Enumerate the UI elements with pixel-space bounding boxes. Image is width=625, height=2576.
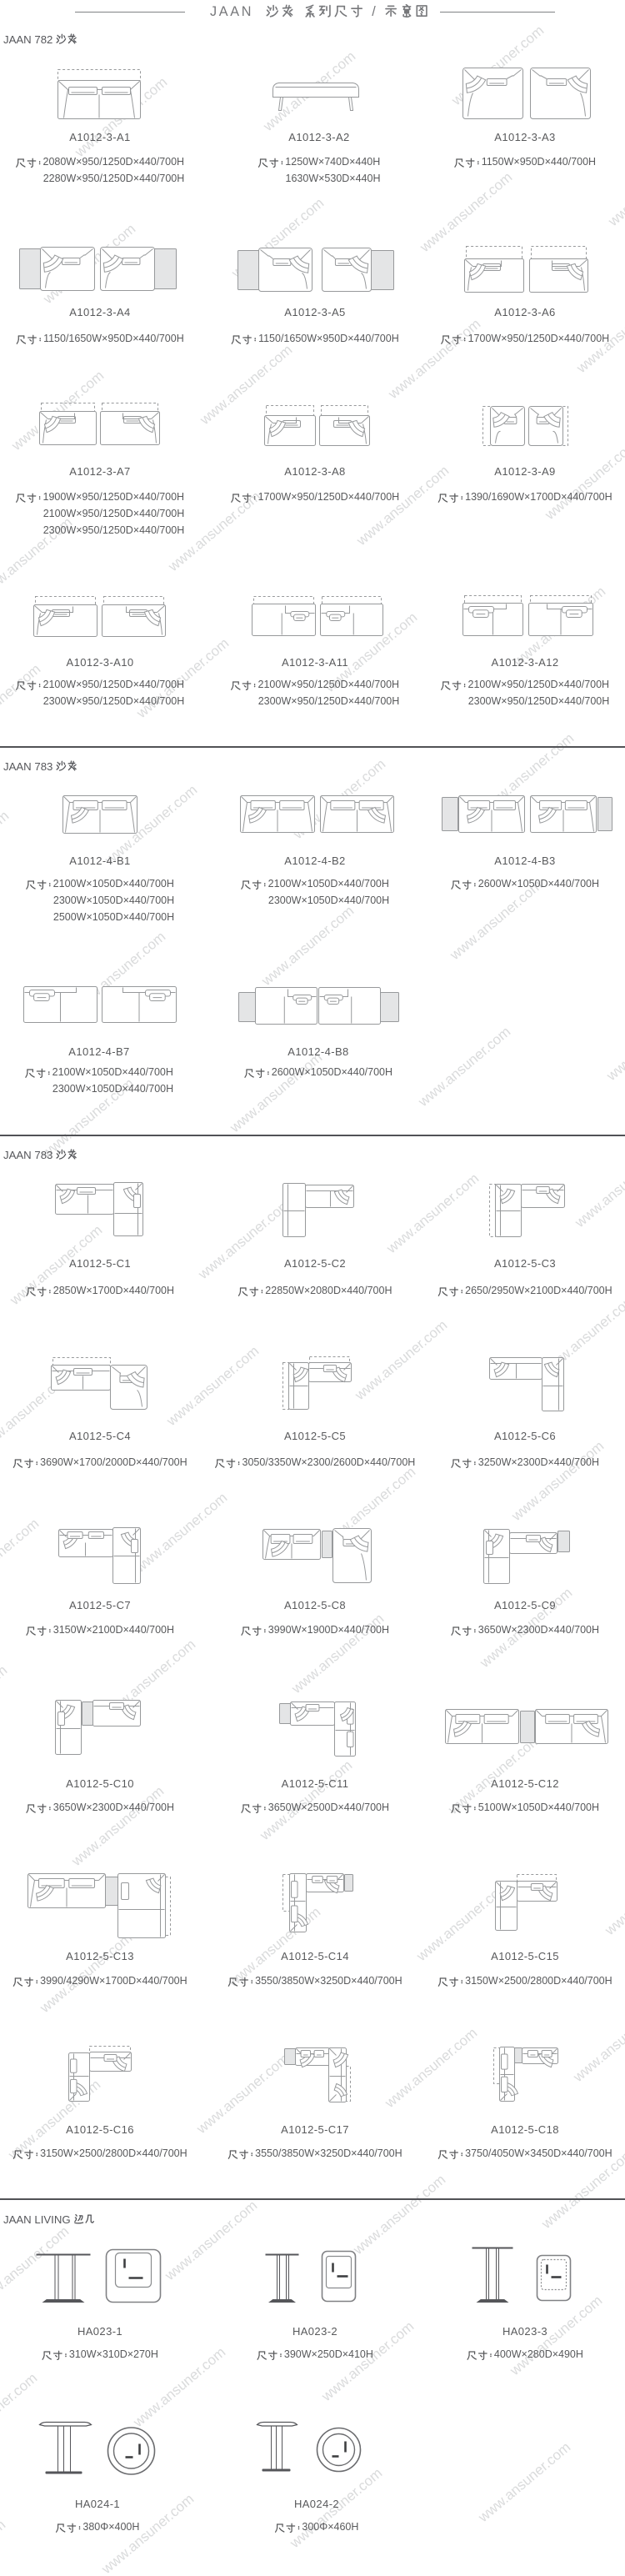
- svg-text:www.ansuner.com: www.ansuner.com: [602, 1852, 625, 1939]
- svg-text:www.ansuner.com: www.ansuner.com: [132, 1490, 231, 1576]
- svg-text:www.ansuner.com: www.ansuner.com: [0, 808, 12, 895]
- svg-text:www.ansuner.com: www.ansuner.com: [0, 2517, 8, 2576]
- svg-text:www.ansuner.com: www.ansuner.com: [0, 1516, 42, 1602]
- svg-text:www.ansuner.com: www.ansuner.com: [352, 1317, 451, 1404]
- svg-text:www.ansuner.com: www.ansuner.com: [162, 2198, 261, 2284]
- svg-text:www.ansuner.com: www.ansuner.com: [193, 2051, 292, 2137]
- svg-text:www.ansuner.com: www.ansuner.com: [542, 437, 625, 524]
- svg-text:www.ansuner.com: www.ansuner.com: [605, 143, 625, 230]
- svg-text:www.ansuner.com: www.ansuner.com: [383, 1170, 482, 1257]
- svg-text:www.ansuner.com: www.ansuner.com: [385, 316, 484, 403]
- svg-text:www.ansuner.com: www.ansuner.com: [570, 1999, 625, 2086]
- svg-text:www.ansuner.com: www.ansuner.com: [258, 903, 357, 990]
- svg-text:www.ansuner.com: www.ansuner.com: [603, 998, 625, 1085]
- svg-text:www.ansuner.com: www.ansuner.com: [353, 463, 452, 549]
- svg-text:www.ansuner.com: www.ansuner.com: [382, 2025, 481, 2112]
- svg-text:www.ansuner.com: www.ansuner.com: [68, 1783, 167, 1870]
- svg-text:www.ansuner.com: www.ansuner.com: [415, 1024, 514, 1110]
- svg-text:www.ansuner.com: www.ansuner.com: [508, 1438, 607, 1525]
- svg-text:www.ansuner.com: www.ansuner.com: [0, 1662, 10, 1749]
- svg-text:www.ansuner.com: www.ansuner.com: [572, 1145, 625, 1231]
- svg-text:www.ansuner.com: www.ansuner.com: [350, 2172, 449, 2258]
- svg-text:www.ansuner.com: www.ansuner.com: [163, 1343, 262, 1430]
- svg-text:www.ansuner.com: www.ansuner.com: [227, 1050, 326, 1136]
- svg-text:www.ansuner.com: www.ansuner.com: [475, 2439, 574, 2526]
